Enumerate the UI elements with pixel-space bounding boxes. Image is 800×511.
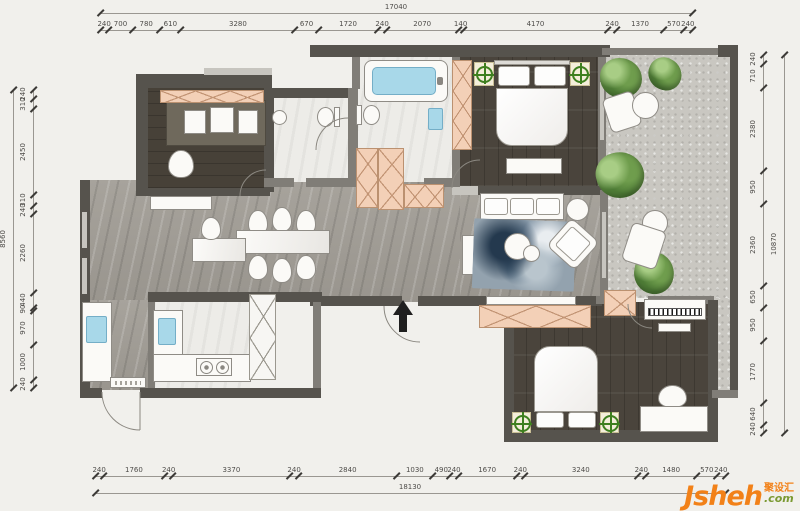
dim-line xyxy=(13,90,14,388)
dim-label: 950 xyxy=(749,318,757,331)
dim-tick xyxy=(9,384,16,391)
dim-line xyxy=(100,13,692,14)
floor-plan-page: 2407007806103280670172024020701404170240… xyxy=(0,0,800,511)
watermark-suffix: .com xyxy=(764,494,794,504)
dim-label: 1030 xyxy=(406,466,424,474)
dim-label: 3280 xyxy=(229,20,247,28)
dim-line xyxy=(95,493,725,494)
dim-label: 310 xyxy=(19,97,27,110)
dim-label: 1000 xyxy=(19,353,27,371)
dim-label: 3240 xyxy=(572,466,590,474)
dim-label: 640 xyxy=(749,407,757,420)
dim-label: 18130 xyxy=(399,483,421,491)
dim-label: 1720 xyxy=(339,20,357,28)
dim-label: 3370 xyxy=(222,466,240,474)
dim-label: 240 xyxy=(749,52,757,65)
dim-line xyxy=(784,55,785,433)
dim-tick xyxy=(780,429,787,436)
dim-label: 570 xyxy=(700,466,713,474)
dim-label: 1480 xyxy=(662,466,680,474)
dim-label: 2360 xyxy=(749,236,757,254)
dim-label: 1670 xyxy=(478,466,496,474)
dim-label: 780 xyxy=(140,20,153,28)
dim-label: 1760 xyxy=(125,466,143,474)
dim-label: 10870 xyxy=(770,233,778,255)
dim-line xyxy=(100,30,692,31)
dim-label: 950 xyxy=(749,180,757,193)
dim-tick xyxy=(29,384,36,391)
dim-label: 570 xyxy=(667,20,680,28)
dim-label: 670 xyxy=(300,20,313,28)
dim-label: 700 xyxy=(114,20,127,28)
dim-label: 1370 xyxy=(631,20,649,28)
dim-label: 710 xyxy=(749,69,757,82)
dim-tick xyxy=(688,9,695,16)
dim-line xyxy=(763,55,764,433)
dim-label: 970 xyxy=(19,321,27,334)
dim-label: 490 xyxy=(435,466,448,474)
dim-label: 90 xyxy=(19,305,27,314)
dim-label: 2380 xyxy=(749,120,757,138)
dim-label: 240 xyxy=(19,203,27,216)
dimension-annotations: 2407007806103280670172024020701404170240… xyxy=(0,0,800,511)
watermark-brand: Jsheh xyxy=(684,484,762,510)
watermark: Jsheh 聚设汇 .com xyxy=(684,484,794,510)
dim-line xyxy=(95,476,725,477)
dim-tick xyxy=(759,429,766,436)
dim-label: 17040 xyxy=(385,3,407,11)
dim-label: 2840 xyxy=(339,466,357,474)
dim-label: 8560 xyxy=(0,230,7,248)
dim-label: 4170 xyxy=(527,20,545,28)
dim-label: 2450 xyxy=(19,143,27,161)
dim-label: 1770 xyxy=(749,363,757,381)
dim-label: 240 xyxy=(19,377,27,390)
dim-label: 650 xyxy=(749,290,757,303)
dim-label: 2260 xyxy=(19,244,27,262)
dim-label: 610 xyxy=(164,20,177,28)
dim-label: 240 xyxy=(749,422,757,435)
dim-label: 2070 xyxy=(413,20,431,28)
